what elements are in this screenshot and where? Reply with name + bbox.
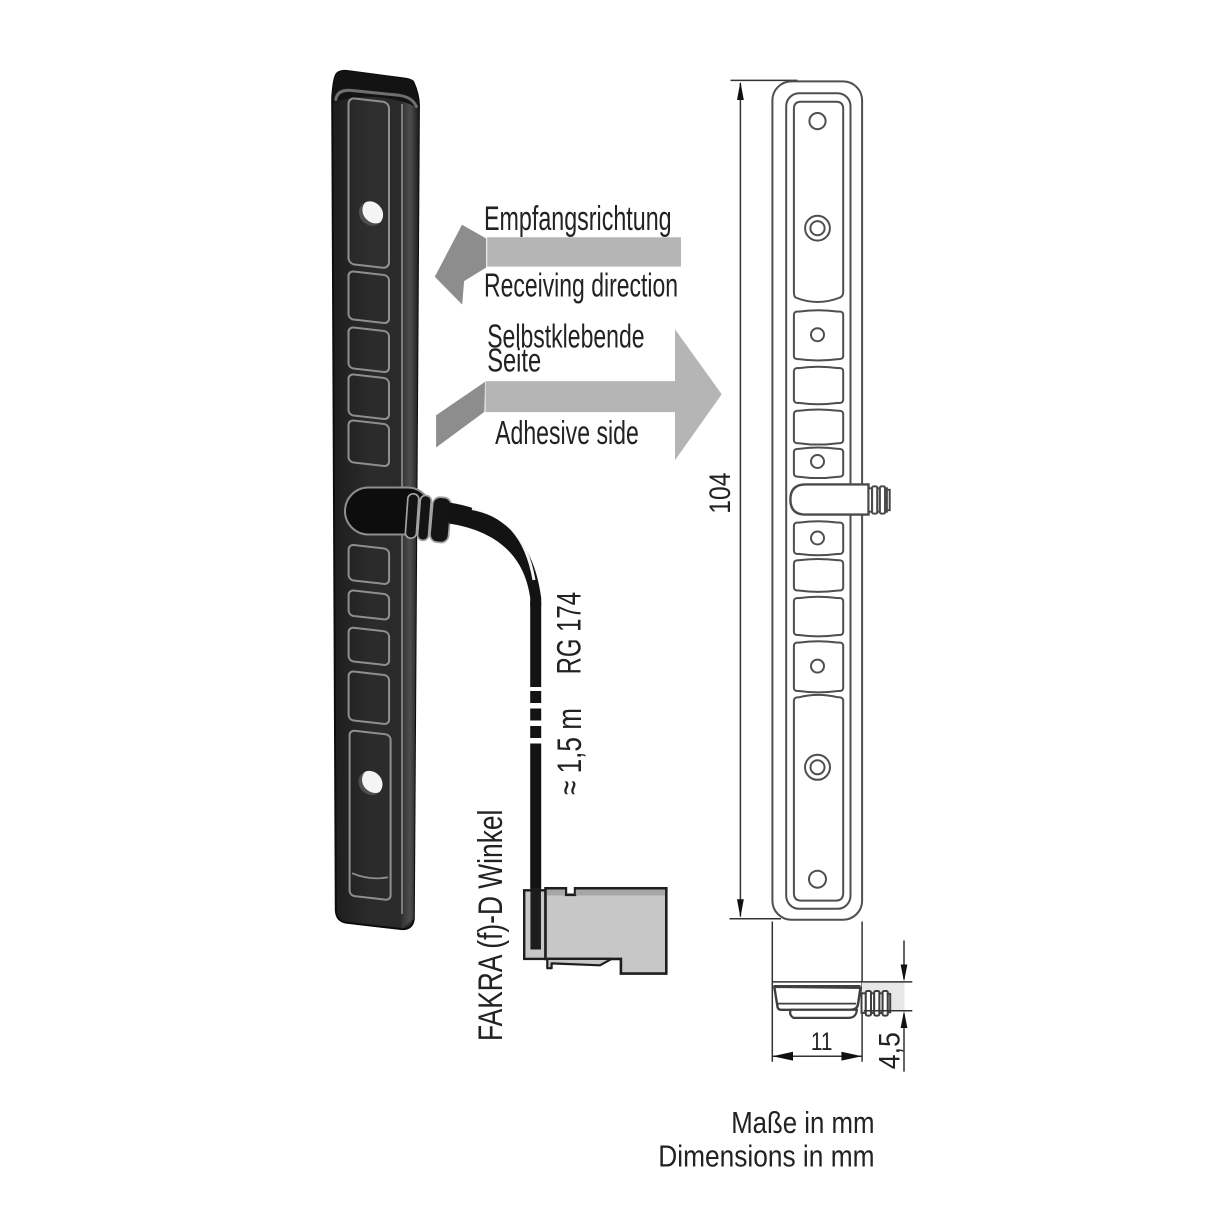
svg-text:Dimensions in mm: Dimensions in mm [658, 1140, 874, 1174]
svg-text:≈ 1,5 m: ≈ 1,5 m [551, 708, 589, 795]
svg-text:Maße in mm: Maße in mm [731, 1106, 874, 1140]
svg-text:Adhesive side: Adhesive side [495, 414, 639, 451]
svg-text:RG 174: RG 174 [551, 592, 589, 674]
svg-text:11: 11 [811, 1028, 833, 1056]
svg-text:Receiving direction: Receiving direction [484, 266, 678, 303]
svg-text:4,5: 4,5 [874, 1032, 907, 1069]
svg-text:FAKRA (f)-D Winkel: FAKRA (f)-D Winkel [472, 810, 510, 1041]
svg-text:Empfangsrichtung: Empfangsrichtung [484, 200, 672, 238]
svg-text:104: 104 [704, 473, 737, 514]
svg-text:Seite: Seite [487, 341, 541, 378]
